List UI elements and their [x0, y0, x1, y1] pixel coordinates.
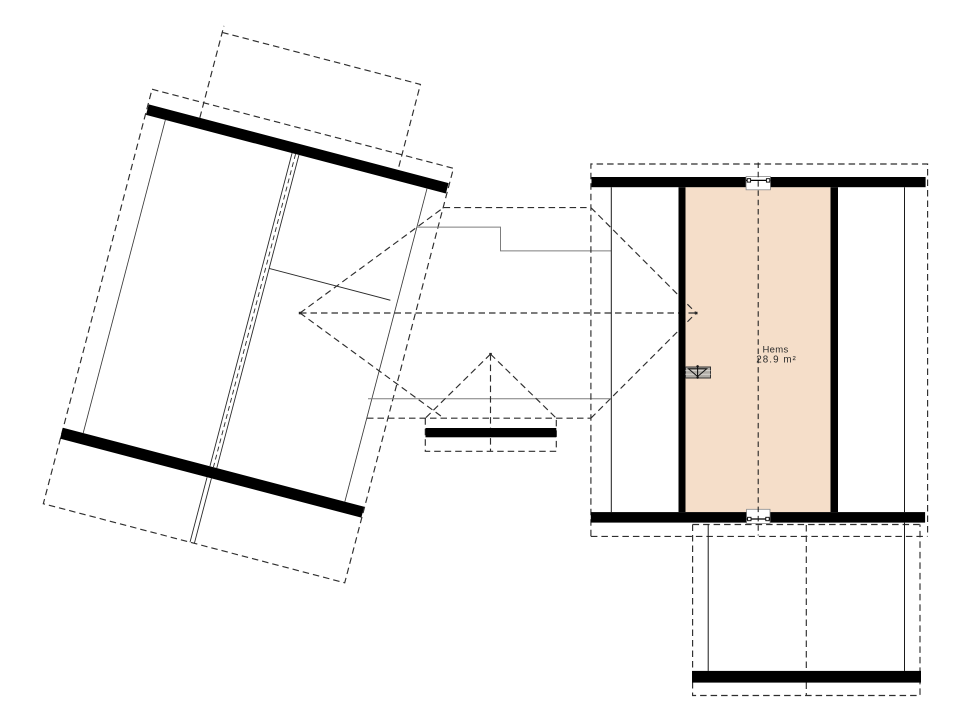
svg-text:28.9 m²: 28.9 m² — [756, 355, 797, 366]
